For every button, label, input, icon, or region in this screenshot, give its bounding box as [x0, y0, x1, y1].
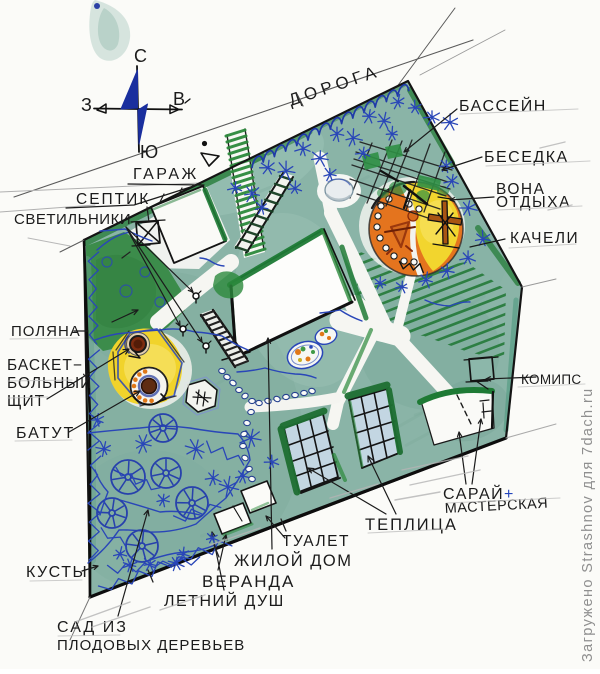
svg-text:Загружено Strashnov для 7dach.: Загружено Strashnov для 7dach.ru: [580, 387, 596, 662]
svg-text:БАТУТ: БАТУТ: [16, 425, 75, 442]
svg-text:Ю: Ю: [140, 142, 158, 162]
svg-text:ВЕРАНДА: ВЕРАНДА: [202, 572, 295, 591]
svg-text:ПОЛЯНА: ПОЛЯНА: [11, 323, 81, 340]
svg-text:ЩИТ: ЩИТ: [7, 393, 45, 410]
svg-text:ПЛОДОВЫХ ДЕРЕВЬЕВ: ПЛОДОВЫХ ДЕРЕВЬЕВ: [57, 637, 245, 654]
svg-text:С: С: [134, 46, 147, 66]
svg-text:БЕСЕДКА: БЕСЕДКА: [484, 149, 569, 166]
svg-text:ГАРАЖ: ГАРАЖ: [133, 166, 199, 183]
svg-text:БОЛЬНЫЙ: БОЛЬНЫЙ: [7, 374, 92, 392]
svg-text:В: В: [173, 89, 185, 109]
svg-text:СВЕТИЛЬНИКИ: СВЕТИЛЬНИКИ: [14, 211, 131, 228]
svg-text:ТУАЛЕТ: ТУАЛЕТ: [282, 533, 350, 550]
svg-text:ЖИЛОЙ ДОМ: ЖИЛОЙ ДОМ: [234, 551, 352, 570]
svg-text:КУСТЫ: КУСТЫ: [26, 564, 88, 581]
svg-text:З: З: [81, 95, 92, 115]
svg-text:БАСКЕТ−: БАСКЕТ−: [7, 357, 83, 374]
svg-text:ЛЕТНИЙ ДУШ: ЛЕТНИЙ ДУШ: [164, 591, 285, 610]
